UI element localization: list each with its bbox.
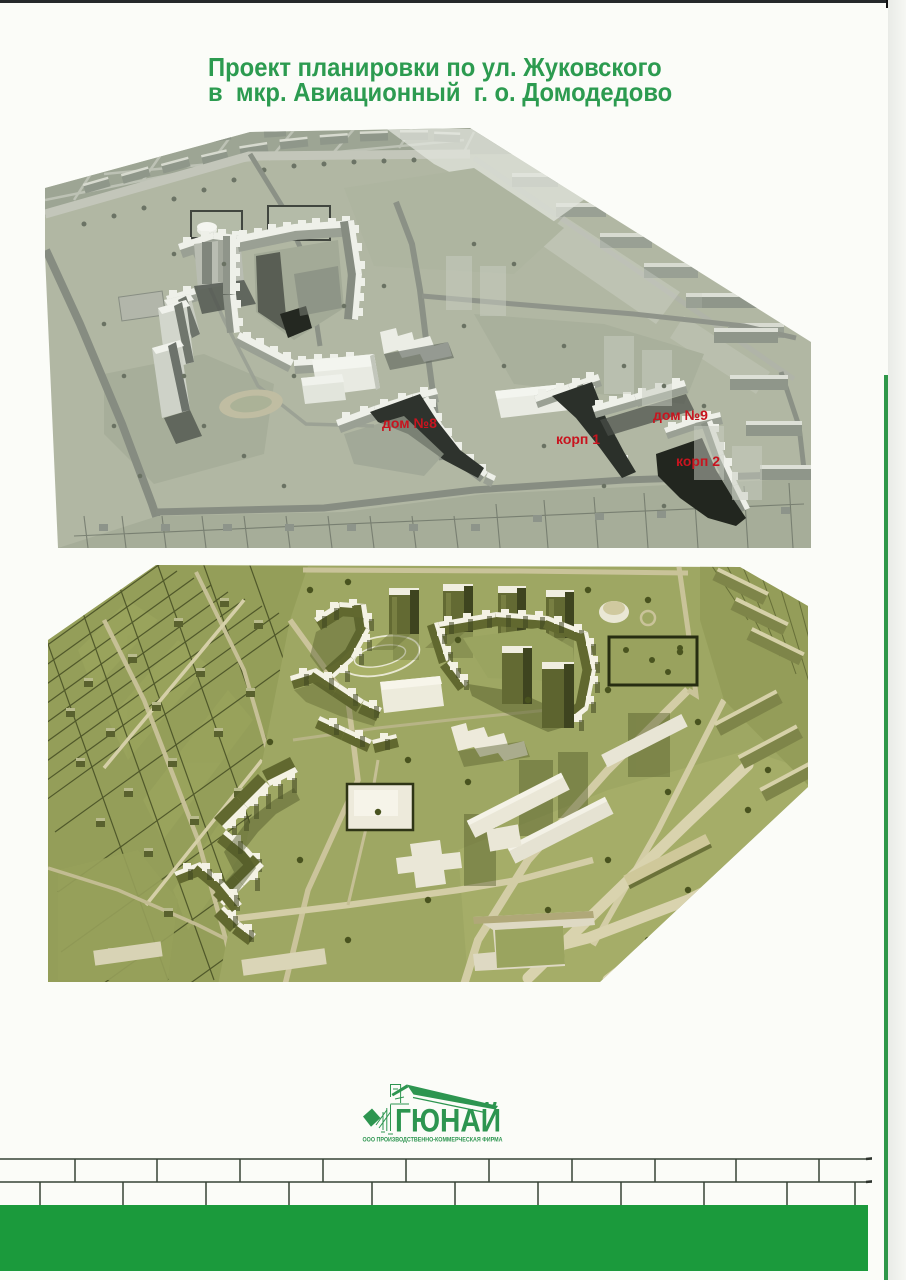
svg-text:корп 1: корп 1 <box>556 431 600 447</box>
svg-text:дом №9: дом №9 <box>653 407 708 423</box>
svg-text:дом №8: дом №8 <box>382 415 437 431</box>
svg-text:ГЮНАЙ: ГЮНАЙ <box>395 1103 501 1139</box>
svg-text:ООО ПРОИЗВОДСТВЕННО-КОММЕРЧЕСК: ООО ПРОИЗВОДСТВЕННО-КОММЕРЧЕСКАЯ ФИРМА <box>363 1137 503 1144</box>
svg-text:корп 2: корп 2 <box>676 453 720 469</box>
